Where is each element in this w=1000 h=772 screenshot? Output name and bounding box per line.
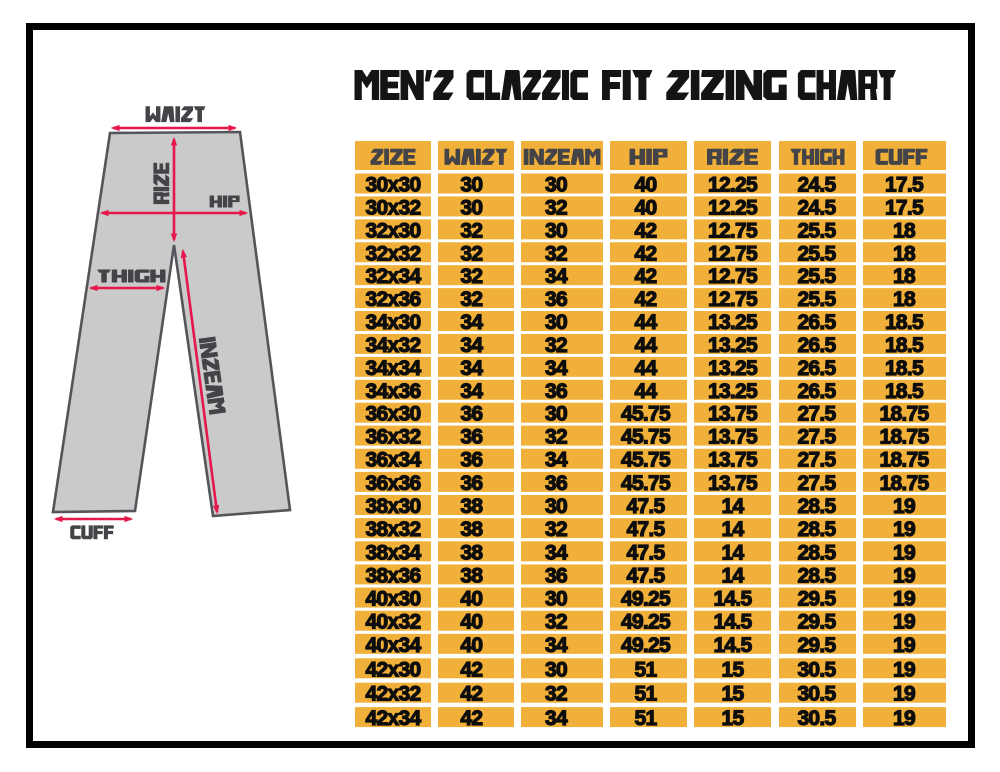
svg-text:34: 34: [545, 707, 568, 730]
svg-text:49.25: 49.25: [621, 611, 671, 634]
svg-text:26.5: 26.5: [797, 357, 836, 380]
svg-text:27.5: 27.5: [797, 426, 836, 449]
svg-text:13.25: 13.25: [708, 311, 758, 334]
svg-text:32: 32: [460, 288, 482, 311]
svg-text:38: 38: [460, 518, 483, 541]
svg-text:27.5: 27.5: [797, 449, 836, 472]
svg-text:45.75: 45.75: [621, 472, 671, 495]
svg-text:45.75: 45.75: [621, 403, 671, 426]
svg-text:34: 34: [460, 334, 483, 357]
svg-text:34x30: 34x30: [366, 311, 421, 334]
svg-text:32x34: 32x34: [366, 265, 422, 288]
svg-text:19: 19: [893, 634, 915, 657]
svg-text:19: 19: [893, 495, 915, 518]
svg-text:40: 40: [460, 611, 482, 634]
svg-text:15: 15: [722, 707, 745, 730]
svg-text:34: 34: [460, 357, 483, 380]
svg-text:32: 32: [545, 683, 567, 706]
svg-text:18.5: 18.5: [885, 334, 924, 357]
svg-text:32: 32: [545, 518, 567, 541]
svg-text:12.75: 12.75: [708, 288, 758, 311]
svg-text:44: 44: [635, 380, 658, 403]
svg-text:13.75: 13.75: [708, 403, 758, 426]
svg-text:34: 34: [460, 311, 483, 334]
svg-text:40: 40: [635, 174, 657, 197]
svg-text:14.5: 14.5: [713, 588, 752, 611]
svg-text:40: 40: [460, 634, 482, 657]
svg-text:27.5: 27.5: [797, 472, 836, 495]
svg-text:32: 32: [545, 334, 567, 357]
svg-text:19: 19: [893, 541, 915, 564]
svg-text:26.5: 26.5: [797, 334, 836, 357]
svg-text:26.5: 26.5: [797, 380, 836, 403]
svg-text:42x30: 42x30: [366, 658, 421, 681]
svg-text:34: 34: [545, 265, 568, 288]
svg-text:19: 19: [893, 518, 915, 541]
svg-text:19: 19: [893, 683, 915, 706]
svg-text:40: 40: [460, 588, 482, 611]
svg-text:38: 38: [460, 541, 483, 564]
svg-text:42: 42: [635, 265, 657, 288]
svg-text:42x32: 42x32: [366, 683, 421, 706]
svg-text:38x34: 38x34: [366, 541, 422, 564]
svg-text:18.75: 18.75: [879, 449, 929, 472]
svg-text:17.5: 17.5: [885, 196, 924, 219]
svg-text:45.75: 45.75: [621, 449, 671, 472]
svg-text:13.75: 13.75: [708, 472, 758, 495]
svg-text:12.25: 12.25: [708, 174, 758, 197]
svg-text:15: 15: [722, 658, 745, 681]
svg-text:28.5: 28.5: [797, 541, 836, 564]
svg-text:19: 19: [893, 588, 915, 611]
svg-text:51: 51: [635, 707, 658, 730]
svg-text:38x30: 38x30: [366, 495, 421, 518]
svg-text:14: 14: [722, 541, 745, 564]
svg-text:18.5: 18.5: [885, 311, 924, 334]
svg-text:38x32: 38x32: [366, 518, 421, 541]
svg-text:36: 36: [545, 288, 567, 311]
svg-text:40x32: 40x32: [366, 611, 421, 634]
svg-text:32x30: 32x30: [366, 219, 421, 242]
svg-text:38x36: 38x36: [366, 564, 421, 587]
svg-text:51: 51: [635, 683, 658, 706]
svg-text:44: 44: [635, 334, 658, 357]
svg-text:47.5: 47.5: [626, 564, 665, 587]
svg-text:24.5: 24.5: [797, 196, 836, 219]
svg-text:36: 36: [460, 403, 482, 426]
svg-text:44: 44: [635, 311, 658, 334]
svg-text:30.5: 30.5: [797, 658, 836, 681]
svg-text:36: 36: [460, 472, 482, 495]
svg-text:30: 30: [460, 174, 482, 197]
svg-text:45.75: 45.75: [621, 426, 671, 449]
svg-text:42: 42: [460, 658, 482, 681]
svg-text:12.75: 12.75: [708, 219, 758, 242]
svg-text:34: 34: [545, 541, 568, 564]
svg-text:34: 34: [545, 357, 568, 380]
svg-text:34x36: 34x36: [366, 380, 421, 403]
svg-text:30: 30: [545, 174, 567, 197]
svg-text:26.5: 26.5: [797, 311, 836, 334]
svg-text:36: 36: [545, 564, 567, 587]
svg-text:30.5: 30.5: [797, 707, 836, 730]
svg-text:38: 38: [460, 495, 483, 518]
svg-text:30.5: 30.5: [797, 683, 836, 706]
svg-text:30: 30: [545, 495, 567, 518]
svg-text:29.5: 29.5: [797, 611, 836, 634]
svg-text:32: 32: [460, 242, 482, 265]
svg-text:14: 14: [722, 495, 745, 518]
svg-text:25.5: 25.5: [797, 219, 836, 242]
svg-text:42: 42: [635, 288, 657, 311]
svg-text:34: 34: [545, 634, 568, 657]
svg-text:30: 30: [460, 196, 482, 219]
svg-text:13.75: 13.75: [708, 449, 758, 472]
svg-text:30: 30: [545, 219, 567, 242]
svg-text:30x30: 30x30: [366, 174, 421, 197]
svg-text:34x34: 34x34: [366, 357, 422, 380]
svg-text:36: 36: [460, 449, 482, 472]
svg-text:34: 34: [460, 380, 483, 403]
svg-text:18.5: 18.5: [885, 380, 924, 403]
svg-text:14: 14: [722, 518, 745, 541]
svg-text:51: 51: [635, 658, 658, 681]
svg-text:14.5: 14.5: [713, 611, 752, 634]
svg-text:36x34: 36x34: [366, 449, 422, 472]
svg-text:18: 18: [893, 265, 916, 288]
svg-text:36x32: 36x32: [366, 426, 421, 449]
svg-text:19: 19: [893, 658, 915, 681]
svg-text:36: 36: [545, 472, 567, 495]
svg-text:40: 40: [635, 196, 657, 219]
svg-text:32: 32: [545, 426, 567, 449]
svg-text:28.5: 28.5: [797, 495, 836, 518]
svg-text:42: 42: [635, 242, 657, 265]
svg-text:18.75: 18.75: [879, 403, 929, 426]
svg-text:25.5: 25.5: [797, 242, 836, 265]
svg-text:30: 30: [545, 403, 567, 426]
svg-text:38: 38: [460, 564, 483, 587]
svg-text:18: 18: [893, 219, 916, 242]
svg-text:13.25: 13.25: [708, 380, 758, 403]
svg-text:47.5: 47.5: [626, 541, 665, 564]
svg-text:36x36: 36x36: [366, 472, 421, 495]
svg-text:19: 19: [893, 707, 915, 730]
svg-text:42: 42: [460, 683, 482, 706]
svg-text:30: 30: [545, 588, 567, 611]
svg-text:40x30: 40x30: [366, 588, 421, 611]
svg-text:19: 19: [893, 611, 915, 634]
svg-text:36: 36: [460, 426, 482, 449]
svg-text:12.75: 12.75: [708, 242, 758, 265]
svg-text:32x36: 32x36: [366, 288, 421, 311]
svg-text:32x32: 32x32: [366, 242, 421, 265]
svg-text:18: 18: [893, 242, 916, 265]
svg-text:32: 32: [460, 265, 482, 288]
svg-text:13.75: 13.75: [708, 426, 758, 449]
svg-text:17.5: 17.5: [885, 174, 924, 197]
svg-text:18.75: 18.75: [879, 426, 929, 449]
svg-text:34: 34: [545, 449, 568, 472]
svg-text:12.75: 12.75: [708, 265, 758, 288]
svg-text:25.5: 25.5: [797, 288, 836, 311]
svg-text:30: 30: [545, 311, 567, 334]
svg-text:40x34: 40x34: [366, 634, 422, 657]
svg-text:15: 15: [722, 683, 745, 706]
svg-text:30: 30: [545, 658, 567, 681]
svg-text:13.25: 13.25: [708, 334, 758, 357]
svg-text:49.25: 49.25: [621, 588, 671, 611]
svg-text:18.5: 18.5: [885, 357, 924, 380]
svg-text:36: 36: [545, 380, 567, 403]
svg-text:13.25: 13.25: [708, 357, 758, 380]
svg-text:29.5: 29.5: [797, 634, 836, 657]
svg-text:36x30: 36x30: [366, 403, 421, 426]
svg-text:27.5: 27.5: [797, 403, 836, 426]
svg-text:19: 19: [893, 564, 915, 587]
svg-text:28.5: 28.5: [797, 518, 836, 541]
svg-text:18: 18: [893, 288, 916, 311]
svg-text:42: 42: [635, 219, 657, 242]
svg-text:42x34: 42x34: [366, 707, 422, 730]
svg-text:14.5: 14.5: [713, 634, 752, 657]
svg-text:14: 14: [722, 564, 745, 587]
svg-text:29.5: 29.5: [797, 588, 836, 611]
svg-text:32: 32: [545, 196, 567, 219]
svg-text:32: 32: [460, 219, 482, 242]
svg-text:47.5: 47.5: [626, 495, 665, 518]
svg-text:42: 42: [460, 707, 482, 730]
svg-text:18.75: 18.75: [879, 472, 929, 495]
svg-text:12.25: 12.25: [708, 196, 758, 219]
svg-text:32: 32: [545, 242, 567, 265]
svg-text:28.5: 28.5: [797, 564, 836, 587]
svg-text:24.5: 24.5: [797, 174, 836, 197]
svg-text:34x32: 34x32: [366, 334, 421, 357]
svg-text:25.5: 25.5: [797, 265, 836, 288]
svg-text:30x32: 30x32: [366, 196, 421, 219]
svg-text:32: 32: [545, 611, 567, 634]
svg-text:49.25: 49.25: [621, 634, 671, 657]
svg-text:47.5: 47.5: [626, 518, 665, 541]
svg-text:44: 44: [635, 357, 658, 380]
